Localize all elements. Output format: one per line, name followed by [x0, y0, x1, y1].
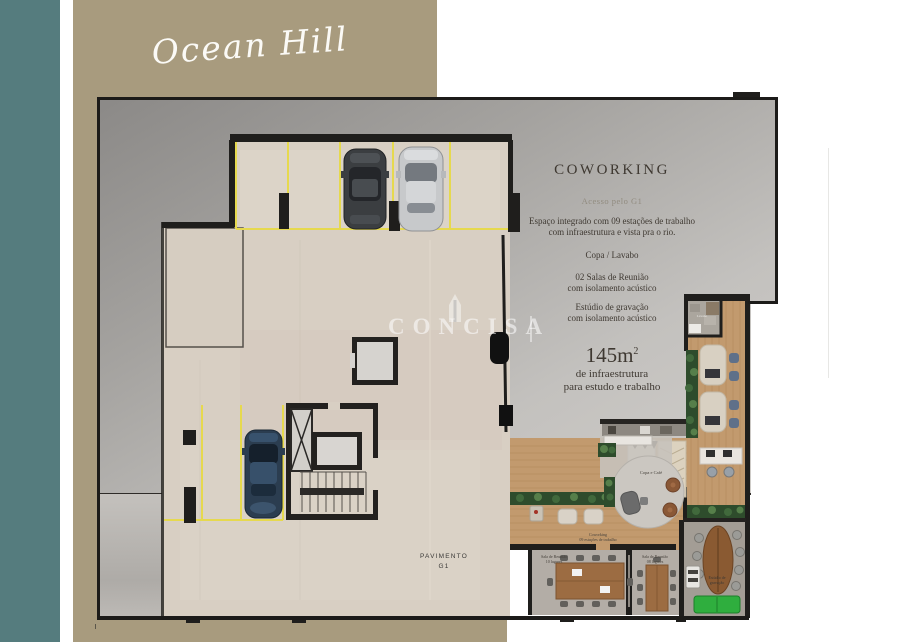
lounge-ottoman — [640, 497, 648, 505]
page: Ocean Hill CONCISA COWORKING Acesso pelo… — [0, 0, 900, 642]
page-edge-line — [828, 148, 829, 378]
feature-line: Copa / Lavabo — [500, 250, 724, 261]
feature-line: Estúdio de gravação — [500, 302, 724, 313]
garage-ramp — [166, 228, 243, 347]
page-tick-mark — [95, 624, 96, 629]
coworking-subtitle: Acesso pelo G1 — [500, 196, 724, 207]
label-meeting-room-1: Sala de Reunião 10 lugares — [541, 554, 567, 564]
car-dark — [341, 149, 389, 229]
area-caption-line2: para estudo e trabalho — [500, 381, 724, 395]
feature-line: com isolamento acústico — [500, 313, 724, 324]
car-blue — [242, 430, 285, 518]
label-recording-studio: Estúdio de gravação — [709, 575, 726, 585]
label-coworking-area: Coworking 09 estações de trabalho — [579, 532, 616, 542]
label-lavabo: Lavabo — [697, 314, 708, 318]
area-exponent: 2 — [633, 346, 638, 357]
feature-workstations: Espaço integrado com 09 estações de trab… — [496, 216, 728, 239]
feature-recording-studio: Estúdio de gravação com isolamento acúst… — [500, 302, 724, 325]
label-pavimento: PAVIMENTO G1 — [400, 552, 488, 572]
feature-line: Espaço integrado com 09 estações de trab… — [496, 216, 728, 227]
feature-copa-lavabo: Copa / Lavabo — [500, 250, 724, 261]
feature-meeting-rooms: 02 Salas de Reunião com isolamento acúst… — [500, 272, 724, 295]
car-silver — [396, 147, 446, 231]
poufs — [530, 506, 603, 524]
label-copa-cafe: Copa e Café — [640, 470, 662, 476]
feature-line: com infraestrutura e vista pra o rio. — [496, 227, 728, 238]
coworking-title: COWORKING — [500, 161, 724, 180]
feature-line: com isolamento acústico — [500, 283, 724, 294]
feature-line: 02 Salas de Reunião — [500, 272, 724, 283]
area-caption-line1: de infraestrutura — [500, 368, 724, 382]
recording-studio — [683, 518, 746, 618]
elevator — [350, 337, 398, 385]
area-value: 145m2 — [500, 342, 724, 368]
label-meeting-room-2: Sala de Reunião 08 lugares — [642, 554, 668, 564]
